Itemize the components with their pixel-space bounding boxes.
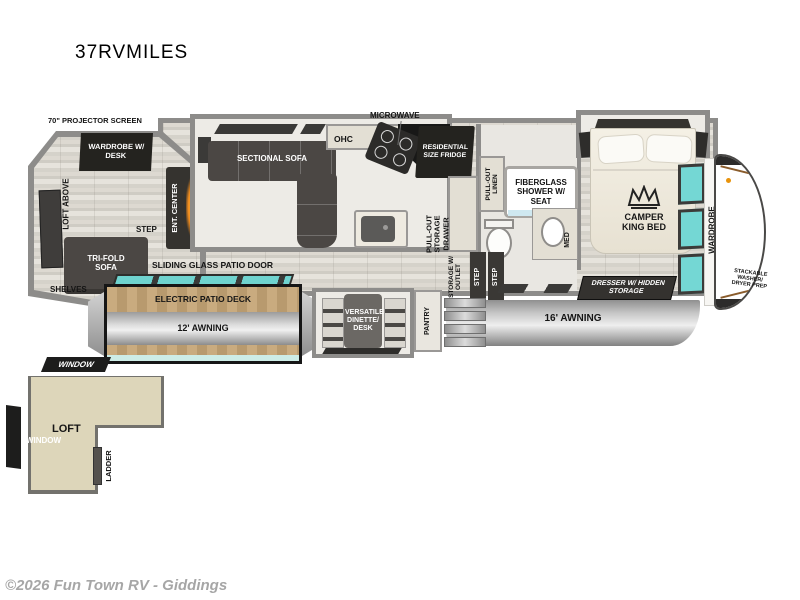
step-box-1-label: STEP [470, 252, 486, 302]
sectional-sofa-label: SECTIONAL SOFA [213, 155, 331, 164]
faucet-icon [383, 225, 388, 230]
copyright: ©2026 Fun Town RV - Giddings [5, 577, 227, 594]
microwave-label: MICROWAVE [370, 112, 420, 121]
deck-wood-bottom [107, 345, 299, 355]
shower-label: FIBERGLASS SHOWER W/ SEAT [510, 178, 572, 206]
loft-label: LOFT [52, 424, 81, 436]
ladder-icon [93, 447, 102, 485]
pillow-icon [597, 133, 645, 164]
slide-window-icon [300, 124, 326, 134]
slide-window-icon [214, 124, 298, 134]
bottom-wall-windows [497, 284, 572, 293]
cap-accent-line [720, 165, 759, 177]
entry-steps [444, 298, 486, 344]
burner-icon [378, 128, 395, 145]
projector-screen-label: 70" PROJECTOR SCREEN [48, 117, 142, 125]
awning-flare-left [88, 292, 104, 356]
ladder-label: LADDER [102, 442, 116, 490]
fridge-label: RESIDENTIAL SIZE FRIDGE [420, 144, 469, 160]
entry-step-icon [444, 298, 486, 308]
storage-outlet-label: STORAGE W/ OUTLET [444, 250, 466, 304]
dresser-label: DRESSER W/ HIDDEN STORAGE [581, 280, 673, 296]
dinette-table: VERSATILE DINETTE/ DESK [344, 294, 382, 348]
entry-step-icon [444, 324, 486, 334]
dinette-slideout: VERSATILE DINETTE/ DESK [312, 288, 414, 358]
electric-patio-deck: ELECTRIC PATIO DECK [107, 287, 299, 312]
washer-prep-label: STACKABLE WASHER/ DRYER PREP [716, 238, 744, 302]
burner-icon [397, 135, 414, 152]
patio-deck-block: ELECTRIC PATIO DECK 12' AWNING [104, 284, 302, 364]
dinette-chair-icon [384, 298, 406, 348]
rear-step-label: STEP [136, 226, 157, 235]
residential-fridge: RESIDENTIAL SIZE FRIDGE [415, 126, 475, 178]
patio-deck-label: ELECTRIC PATIO DECK [155, 295, 251, 304]
dinette-chair-icon [322, 298, 344, 348]
burner-icon [372, 144, 389, 161]
awning-12-label: 12' AWNING [177, 324, 228, 334]
window-label-top: WINDOW [41, 357, 111, 372]
sectional-sofa-vertical [297, 174, 337, 248]
wardrobe-mirror-icon [678, 253, 705, 294]
crown-icon [626, 185, 662, 211]
entry-step-icon [444, 311, 486, 321]
wardrobe-mirror-icon [678, 208, 705, 249]
pantry-label: PANTRY [414, 292, 442, 350]
page: { "title": "37RVMILES", "footer": { "cop… [0, 0, 800, 600]
dresser: DRESSER W/ HIDDEN STORAGE [577, 276, 677, 300]
trifold-sofa-label: TRI-FOLD SOFA [80, 254, 132, 272]
dinette-label: VERSATILE DINETTE/ DESK [345, 309, 381, 333]
cap-top-edge [716, 156, 764, 165]
wardrobe-desk-label: WARDROBE W/ DESK [87, 143, 146, 160]
window-side-text: WINDOW [6, 406, 21, 468]
dinette-desk-bar [322, 348, 401, 354]
med-cabinet-label: MED [560, 220, 576, 260]
ent-center-label: ENT. CENTER [166, 172, 184, 244]
ohc-label: OHC [334, 135, 353, 144]
awning-12: 12' AWNING [107, 312, 299, 345]
sliding-door-label: SLIDING GLASS PATIO DOOR [152, 261, 273, 270]
burner-icon [391, 151, 408, 168]
bed-label: CAMPER KING BED [615, 213, 673, 232]
sink-icon [361, 216, 395, 242]
wardrobe-desk: WARDROBE W/ DESK [79, 133, 153, 171]
loft-above-label: LOFT ABOVE [58, 172, 76, 236]
pullout-linen-label: PULL-OUT LINEN [479, 158, 505, 210]
entry-step-icon [444, 337, 486, 347]
pillow-icon [645, 134, 692, 164]
kitchen-island [354, 210, 408, 248]
window-top-text: WINDOW [57, 360, 96, 369]
deck-cyan-strip [107, 355, 299, 361]
wardrobe-panels [678, 163, 705, 304]
step-box-2-label: STEP [488, 252, 504, 302]
cap-marker-dot [726, 178, 731, 183]
page-title: 37RVMILES [75, 42, 188, 64]
wardrobe-mirror-icon [678, 163, 705, 204]
shelves-label: SHELVES [50, 286, 87, 295]
